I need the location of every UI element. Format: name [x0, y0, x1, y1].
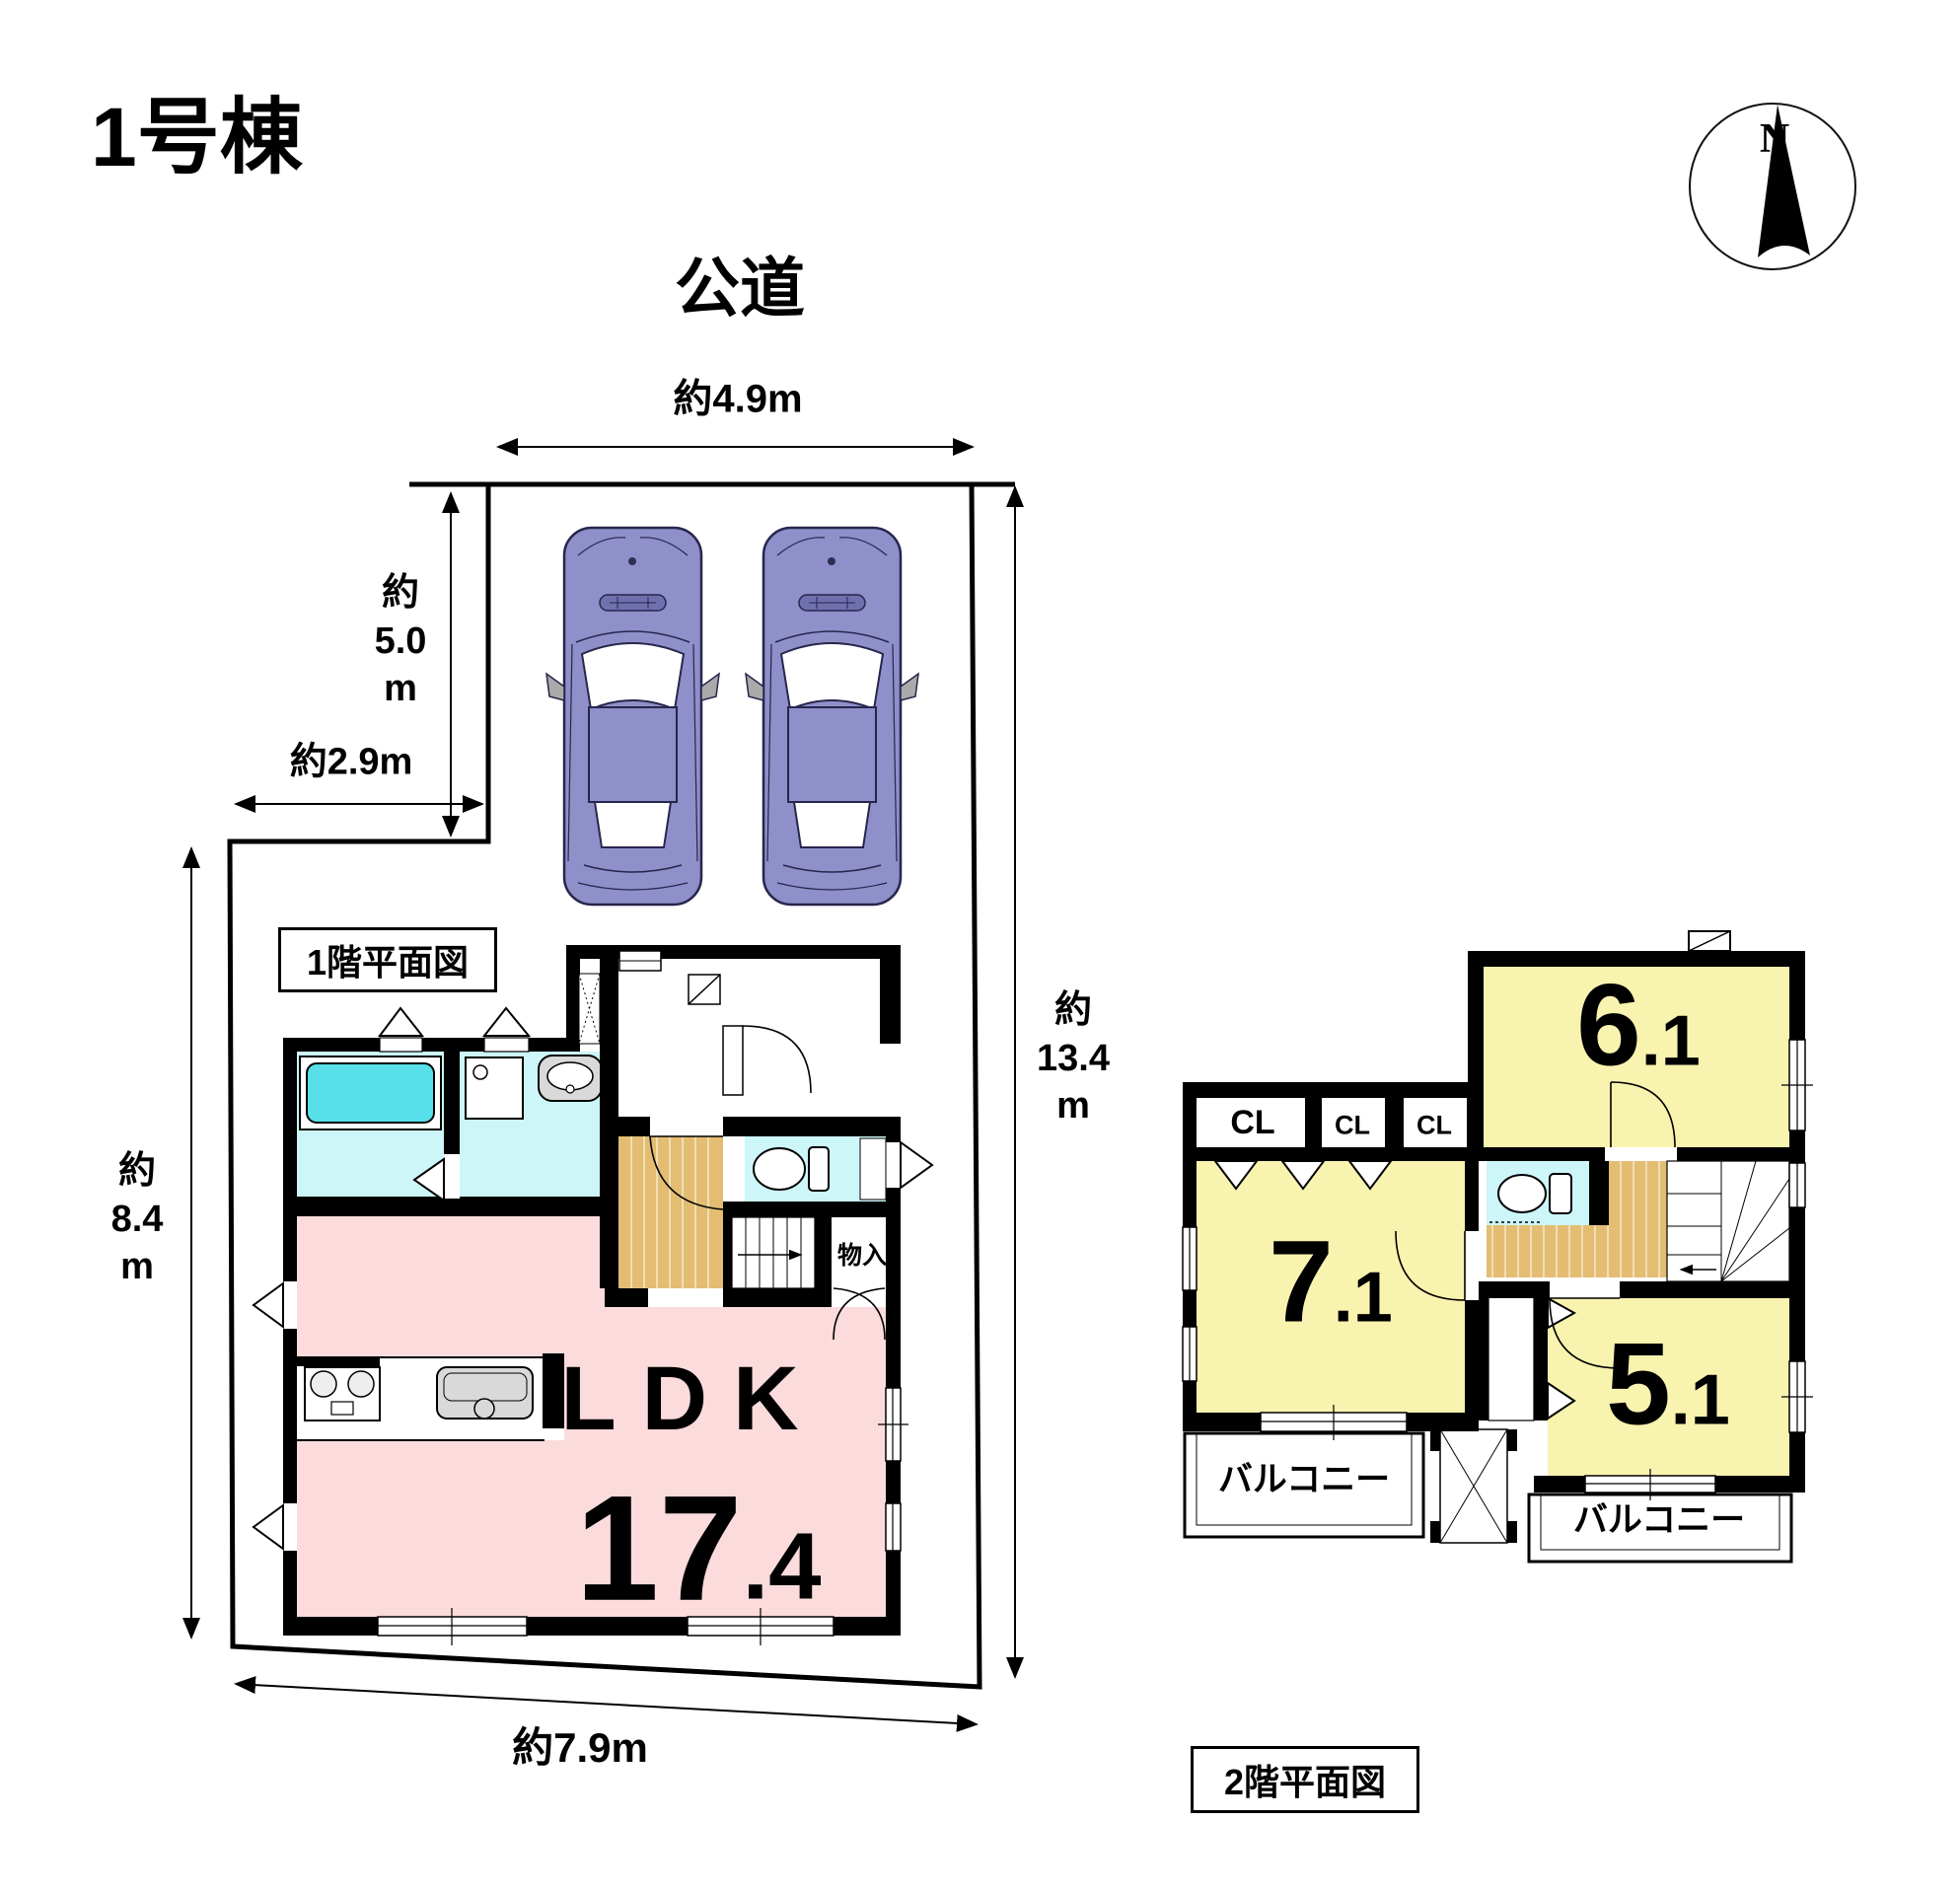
ldk-area: 17.4: [575, 1488, 821, 1611]
ldk-label: LDK: [560, 1342, 824, 1458]
dim-frontage: 約4.9m: [673, 374, 802, 424]
dim-parking-depth: 約 5.0 m: [375, 569, 427, 713]
car-icon: [746, 528, 918, 905]
compass-north-label: N: [1760, 113, 1789, 167]
stairs-2f: [1667, 1161, 1789, 1281]
washer-icon: [466, 1057, 523, 1119]
toilet-icon-1f: [754, 1147, 829, 1191]
balcony-left-label: バルコニー: [1218, 1459, 1390, 1503]
bathtub-icon: [300, 1056, 441, 1129]
balcony-right-label: バルコニー: [1573, 1499, 1745, 1544]
hall-1f: [618, 1136, 723, 1288]
dim-setback: 約2.9m: [290, 739, 413, 787]
floor1-caption: 1階平面図: [278, 927, 497, 992]
void-shaft: [1430, 1429, 1517, 1543]
floorplan-page: 1号棟 公道 約4.9m 約 5.0 m 約2.9m 約 8.4 m 約 13.…: [0, 0, 1960, 1894]
basin-icon: [539, 1056, 602, 1101]
room-7-label: 7.1: [1269, 1235, 1393, 1331]
page-title: 1号棟: [91, 71, 303, 190]
storage-label: 物入: [837, 1240, 887, 1272]
road-label: 公道: [675, 247, 805, 329]
closet-label-3: CL: [1416, 1109, 1452, 1143]
dim-site-bottom: 約7.9m: [512, 1721, 648, 1775]
closet-label-1: CL: [1230, 1102, 1274, 1145]
dim-site-left: 約 8.4 m: [111, 1147, 164, 1291]
closet-label-2: CL: [1335, 1109, 1370, 1143]
car-icon: [546, 528, 719, 905]
stairs-1f: [732, 1217, 815, 1288]
dim-site-right: 約 13.4 m: [1037, 986, 1110, 1130]
floor2-caption: 2階平面図: [1191, 1746, 1419, 1813]
room-6-label: 6.1: [1576, 979, 1701, 1074]
room-5-label: 5.1: [1606, 1338, 1730, 1433]
kitchen-counter: [297, 1353, 564, 1440]
